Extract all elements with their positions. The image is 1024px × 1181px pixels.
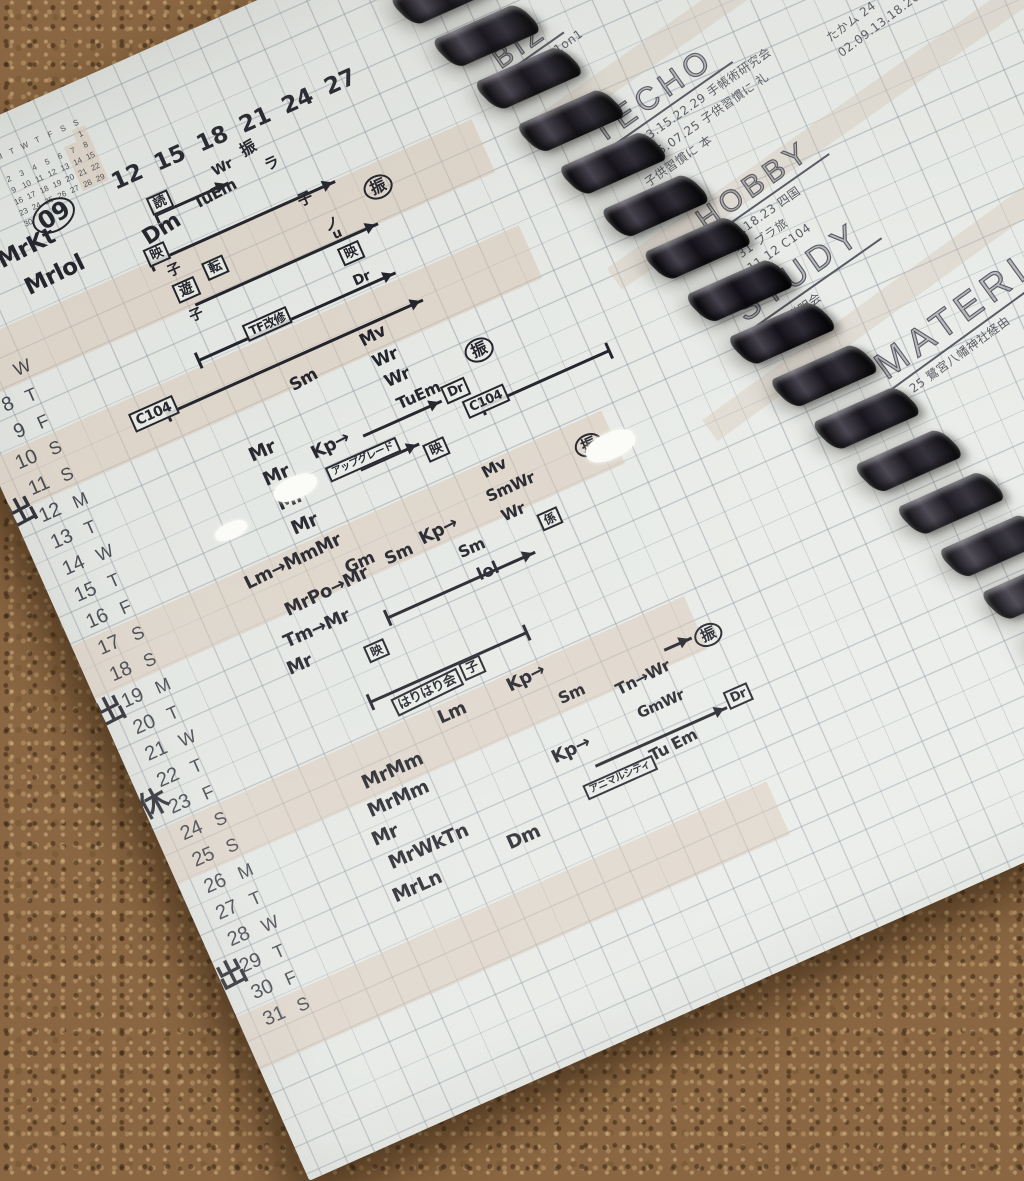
correction-tape-patch <box>212 516 250 544</box>
handwritten-note: 振 <box>237 138 258 160</box>
handwritten-note: C104 <box>128 395 180 433</box>
day-of-week-letter: F <box>34 410 53 434</box>
day-of-week-letter: F <box>282 967 301 991</box>
handwritten-note: ラ <box>262 154 281 174</box>
handwritten-note: Sm <box>456 535 487 561</box>
handwritten-note: Kp→ <box>549 733 593 767</box>
handwritten-note: Kp→ <box>416 514 460 548</box>
handwritten-note: Mr <box>288 510 321 538</box>
handwritten-note: Dm <box>504 822 543 853</box>
day-of-week-letter: S <box>46 436 66 460</box>
handwritten-note: 遊 <box>171 276 201 304</box>
handwritten-note: Wr <box>499 500 528 524</box>
handwritten-note: Kp→ <box>504 661 548 695</box>
handwritten-note: 係 <box>536 506 563 531</box>
handwritten-note: Sm <box>556 681 587 707</box>
day-of-week-letter: T <box>81 516 100 540</box>
day-of-week-letter: M <box>69 488 91 513</box>
day-of-week-letter: T <box>270 940 289 964</box>
day-of-week-letter: S <box>140 648 160 672</box>
day-of-week-letter: W <box>258 911 282 937</box>
day-of-week-letter: W <box>10 355 34 381</box>
day-of-week-letter: M <box>234 859 256 884</box>
handwritten-note: 映 <box>337 240 365 267</box>
handwritten-note: 映 <box>363 638 390 663</box>
day-of-week-letter: T <box>105 569 124 593</box>
handwritten-note: MrWkTn <box>386 821 472 873</box>
section-material: MATERIAL25 鷺宮八幡神社経由 <box>868 205 1024 405</box>
gantt-span-arrow <box>664 637 693 652</box>
cork-board: { "scene": { "description": "spiral-boun… <box>0 0 1024 1024</box>
axis-date-label: 15 <box>150 140 190 177</box>
handwritten-note: GmWr <box>635 687 686 721</box>
handwritten-note: Mr <box>284 652 315 679</box>
notebook-page: 9 MTWTFSS1234567891011121314151617181920… <box>0 0 1024 1181</box>
day-of-week-letter: S <box>58 463 78 487</box>
axis-date-label: 21 <box>235 102 275 139</box>
handwritten-note: アニマルシティ <box>582 755 658 800</box>
handwritten-note: 振 <box>360 170 397 204</box>
handwritten-note: 子 <box>165 261 183 279</box>
day-of-week-letter: W <box>175 726 199 752</box>
axis-date-label: 24 <box>278 83 318 120</box>
handwritten-note: Mr <box>369 822 402 850</box>
day-of-week-letter: S <box>223 834 243 858</box>
handwritten-note: Lm <box>435 699 469 727</box>
gantt-span-arrow <box>369 631 527 704</box>
day-of-week-letter: T <box>187 755 206 779</box>
day-of-week-letter: T <box>164 702 183 726</box>
handwritten-note: MrLn <box>390 868 445 906</box>
day-of-week-letter: T <box>246 887 265 911</box>
handwritten-note: 振 <box>461 333 498 367</box>
day-of-week-letter: S <box>293 993 313 1017</box>
axis-date-label: 18 <box>193 121 233 158</box>
day-of-week-letter: S <box>128 622 148 646</box>
handwritten-note: Sm <box>287 366 321 395</box>
gantt-span-arrow <box>387 551 536 620</box>
day-of-week-letter: T <box>22 384 41 408</box>
day-of-week-letter: F <box>117 596 136 620</box>
axis-date-label: 27 <box>320 64 360 101</box>
day-of-week-letter: M <box>152 674 174 699</box>
handwritten-note: Wr <box>382 365 413 391</box>
day-of-week-letter: F <box>199 781 218 805</box>
day-of-week-letter: S <box>211 807 231 831</box>
handwritten-note: 映 <box>422 436 450 463</box>
handwritten-note: 子 <box>187 306 205 324</box>
day-of-week-letter: W <box>93 540 117 566</box>
section-techo-right: たかム 2402.09.13.18.26.30 ブカバ <box>810 0 973 69</box>
correction-tape-patch <box>581 423 639 468</box>
handwritten-note: TF改修 <box>242 306 294 342</box>
handwritten-note: Mr <box>246 437 279 465</box>
handwritten-note: Sm <box>382 541 415 568</box>
handwritten-note: Mv <box>479 455 509 481</box>
handwritten-note: 転 <box>201 255 229 282</box>
handwritten-note: lol <box>475 560 502 584</box>
handwritten-note: TuEm <box>191 176 239 212</box>
handwritten-note: 振 <box>690 619 725 652</box>
